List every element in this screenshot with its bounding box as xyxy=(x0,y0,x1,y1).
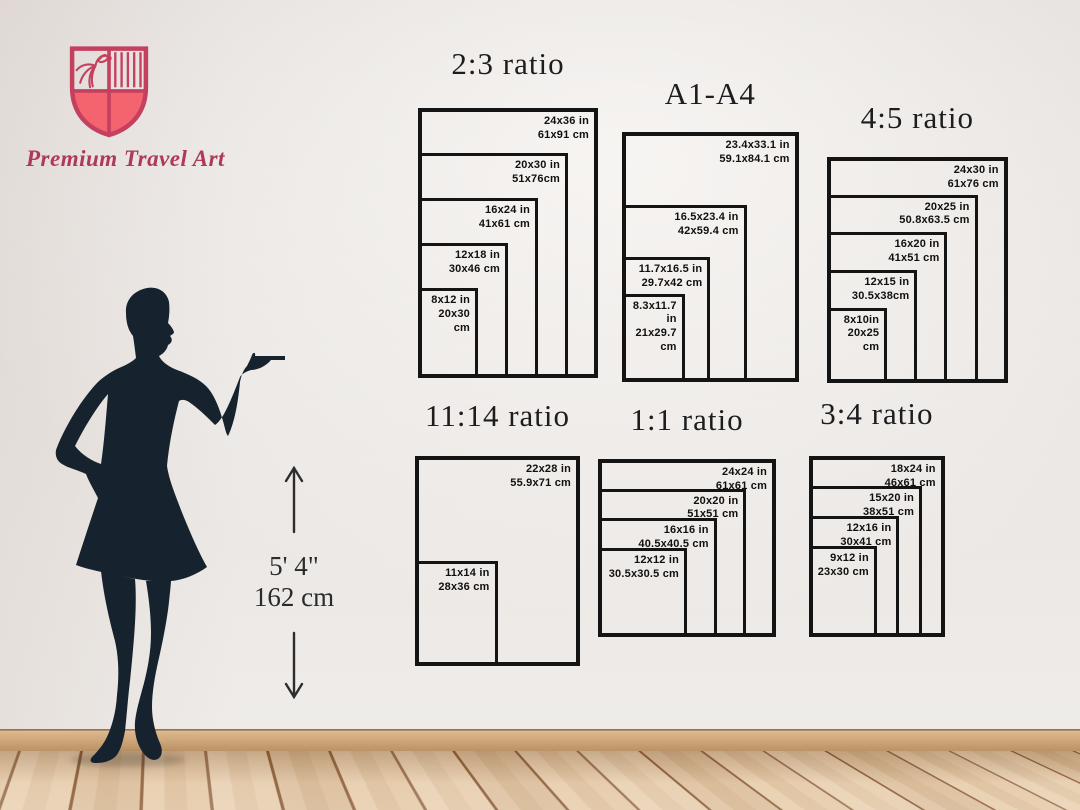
size-panel: 24x24 in61x61 cm20x20 in51x51 cm16x16 in… xyxy=(598,459,776,637)
size-cm: 21x29.7 cm xyxy=(625,327,677,355)
height-cm-label: 162 cm xyxy=(234,583,354,611)
size-cm: 20x25 cm xyxy=(830,327,879,355)
size-cm: 29.7x42 cm xyxy=(639,277,703,291)
size-frame: 11x14 in28x36 cm xyxy=(415,561,498,666)
size-cm: 20x30 cm xyxy=(421,308,470,336)
size-label: 20x25 in50.8x63.5 cm xyxy=(899,201,969,229)
size-label: 24x30 in61x76 cm xyxy=(948,164,999,192)
size-label: 11.7x16.5 in29.7x42 cm xyxy=(639,263,703,291)
size-inches: 8x10in xyxy=(830,314,879,328)
size-label: 23.4x33.1 in59.1x84.1 cm xyxy=(719,139,789,167)
size-label: 24x36 in61x91 cm xyxy=(538,115,589,143)
size-inches: 18x24 in xyxy=(885,463,936,477)
size-inches: 11x14 in xyxy=(438,567,489,581)
size-cm: 30.5x38cm xyxy=(852,290,909,304)
size-label: 9x12 in23x30 cm xyxy=(818,552,869,580)
panel-title: 4:5 ratio xyxy=(861,100,974,136)
size-inches: 22x28 in xyxy=(510,463,571,477)
size-cm: 51x76cm xyxy=(512,173,560,187)
size-frame: 9x12 in23x30 cm xyxy=(809,546,877,636)
size-inches: 8x12 in xyxy=(421,294,470,308)
height-feet-label: 5' 4" xyxy=(234,552,354,580)
size-panel: 24x30 in61x76 cm20x25 in50.8x63.5 cm16x2… xyxy=(827,157,1008,383)
size-cm: 30.5x30.5 cm xyxy=(609,568,679,582)
size-inches: 12x16 in xyxy=(840,522,891,536)
size-inches: 24x30 in xyxy=(948,164,999,178)
size-label: 12x15 in30.5x38cm xyxy=(852,276,909,304)
size-label: 11x14 in28x36 cm xyxy=(438,567,489,595)
palm-bird-emblem-icon xyxy=(77,55,111,87)
woman-silhouette xyxy=(40,280,290,775)
size-inches: 24x36 in xyxy=(538,115,589,129)
size-label: 8.3x11.7 in21x29.7 cm xyxy=(625,300,677,355)
size-frame: 8x12 in20x30 cm xyxy=(418,288,478,378)
size-inches: 20x25 in xyxy=(899,201,969,215)
size-frame: 12x12 in30.5x30.5 cm xyxy=(598,548,687,637)
size-label: 8x12 in20x30 cm xyxy=(421,294,470,335)
size-inches: 20x20 in xyxy=(687,495,738,509)
size-inches: 16x24 in xyxy=(479,204,530,218)
size-label: 16.5x23.4 in42x59.4 cm xyxy=(674,211,738,239)
size-inches: 8.3x11.7 in xyxy=(625,300,677,328)
panel-title: 3:4 ratio xyxy=(820,396,933,432)
size-inches: 16.5x23.4 in xyxy=(674,211,738,225)
size-cm: 41x51 cm xyxy=(888,252,939,266)
size-inches: 16x16 in xyxy=(638,524,708,538)
size-panel: 18x24 in46x61 cm15x20 in38x51 cm12x16 in… xyxy=(809,456,945,637)
brand-shield-logo-icon xyxy=(64,42,154,138)
size-label: 12x18 in30x46 cm xyxy=(449,249,500,277)
size-cm: 28x36 cm xyxy=(438,581,489,595)
panel-title: 1:1 ratio xyxy=(630,402,743,438)
panel-title: 2:3 ratio xyxy=(451,46,564,82)
size-panel: 22x28 in55.9x71 cm11x14 in28x36 cm xyxy=(415,456,580,666)
size-inches: 15x20 in xyxy=(863,492,914,506)
size-label: 20x30 in51x76cm xyxy=(512,159,560,187)
size-label: 16x24 in41x61 cm xyxy=(479,204,530,232)
size-cm: 23x30 cm xyxy=(818,566,869,580)
size-inches: 20x30 in xyxy=(512,159,560,173)
size-inches: 12x18 in xyxy=(449,249,500,263)
size-cm: 61x91 cm xyxy=(538,129,589,143)
poster-size-guide-image: Premium Travel Art 5' 4" 162 cm 2:3 rati… xyxy=(0,0,1080,810)
size-frame: 8.3x11.7 in21x29.7 cm xyxy=(622,294,685,382)
size-inches: 12x15 in xyxy=(852,276,909,290)
size-inches: 16x20 in xyxy=(888,238,939,252)
size-inches: 24x24 in xyxy=(716,466,767,480)
size-inches: 12x12 in xyxy=(609,554,679,568)
size-panel: 23.4x33.1 in59.1x84.1 cm16.5x23.4 in42x5… xyxy=(622,132,799,382)
size-label: 8x10in20x25 cm xyxy=(830,314,879,355)
size-inches: 11.7x16.5 in xyxy=(639,263,703,277)
size-inches: 9x12 in xyxy=(818,552,869,566)
brand-name: Premium Travel Art xyxy=(26,146,226,172)
size-panel: 24x36 in61x91 cm20x30 in51x76cm16x24 in4… xyxy=(418,108,598,378)
size-label: 22x28 in55.9x71 cm xyxy=(510,463,571,491)
panel-title: 11:14 ratio xyxy=(425,398,570,434)
size-inches: 23.4x33.1 in xyxy=(719,139,789,153)
size-cm: 55.9x71 cm xyxy=(510,477,571,491)
size-label: 16x20 in41x51 cm xyxy=(888,238,939,266)
size-cm: 61x76 cm xyxy=(948,178,999,192)
size-cm: 59.1x84.1 cm xyxy=(719,153,789,167)
size-cm: 42x59.4 cm xyxy=(674,225,738,239)
size-frame: 8x10in20x25 cm xyxy=(827,308,887,383)
size-cm: 30x46 cm xyxy=(449,263,500,277)
stripes xyxy=(115,52,140,87)
size-cm: 41x61 cm xyxy=(479,218,530,232)
panel-title: A1-A4 xyxy=(665,76,756,112)
size-cm: 50.8x63.5 cm xyxy=(899,214,969,228)
size-label: 12x12 in30.5x30.5 cm xyxy=(609,554,679,582)
